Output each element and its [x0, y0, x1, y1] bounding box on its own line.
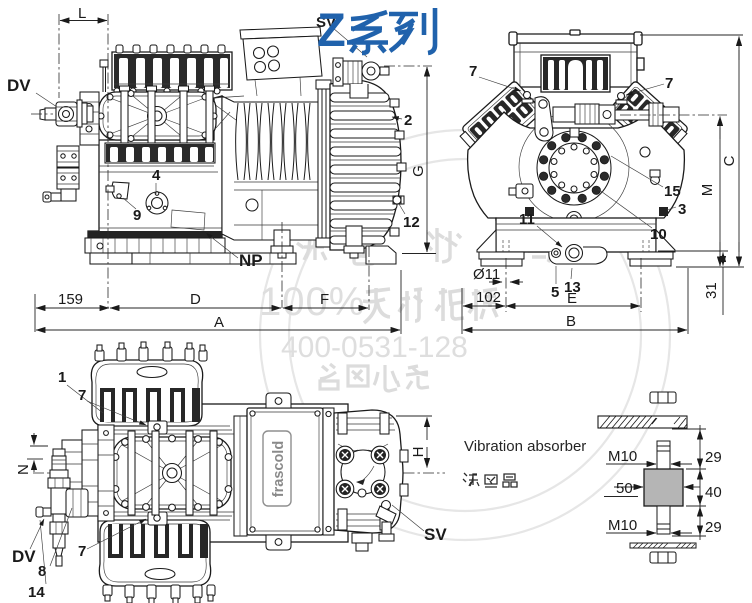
svg-text:G: G: [410, 165, 427, 177]
svg-text:5: 5: [551, 284, 559, 301]
svg-text:D: D: [190, 291, 201, 308]
svg-text:3: 3: [678, 201, 686, 218]
svg-text:12: 12: [403, 214, 420, 231]
svg-text:N: N: [15, 464, 32, 475]
svg-text:7: 7: [78, 543, 86, 560]
svg-text:7: 7: [665, 75, 673, 92]
svg-text:159: 159: [58, 291, 83, 308]
svg-text:50: 50: [616, 480, 633, 497]
svg-text:7: 7: [469, 63, 477, 80]
svg-text:7: 7: [78, 387, 86, 404]
svg-text:Vibration absorber: Vibration absorber: [464, 438, 586, 455]
svg-text:F: F: [320, 291, 329, 308]
svg-text:E: E: [567, 290, 577, 307]
svg-text:A: A: [214, 314, 224, 331]
svg-text:1: 1: [58, 369, 66, 386]
svg-text:M10: M10: [608, 448, 637, 465]
svg-text:40: 40: [705, 484, 722, 501]
svg-text:9: 9: [133, 207, 141, 224]
svg-text:29: 29: [705, 519, 722, 536]
svg-text:B: B: [566, 313, 576, 330]
svg-text:11: 11: [519, 211, 535, 228]
svg-text:frascold: frascold: [271, 441, 287, 497]
svg-text:Z: Z: [317, 3, 346, 56]
svg-text:102: 102: [476, 289, 501, 306]
svg-text:DV: DV: [12, 547, 36, 566]
svg-text:14: 14: [28, 584, 45, 601]
svg-text:C: C: [721, 155, 738, 166]
svg-text:100%: 100%: [259, 280, 365, 324]
svg-text:NP: NP: [239, 251, 263, 270]
svg-text:Ø11: Ø11: [473, 266, 500, 283]
svg-text:M10: M10: [608, 517, 637, 534]
svg-text:31: 31: [703, 282, 720, 299]
svg-text:L: L: [78, 5, 86, 22]
svg-text:DV: DV: [7, 76, 31, 95]
svg-text:400-0531-128: 400-0531-128: [281, 331, 468, 364]
svg-text:2: 2: [404, 112, 412, 129]
svg-text:4: 4: [152, 167, 161, 184]
svg-text:M: M: [699, 184, 716, 197]
svg-text:SV: SV: [424, 525, 447, 544]
svg-text:H: H: [410, 447, 427, 458]
svg-text:15: 15: [664, 183, 681, 200]
svg-text:10: 10: [650, 226, 667, 243]
svg-text:29: 29: [705, 449, 722, 466]
